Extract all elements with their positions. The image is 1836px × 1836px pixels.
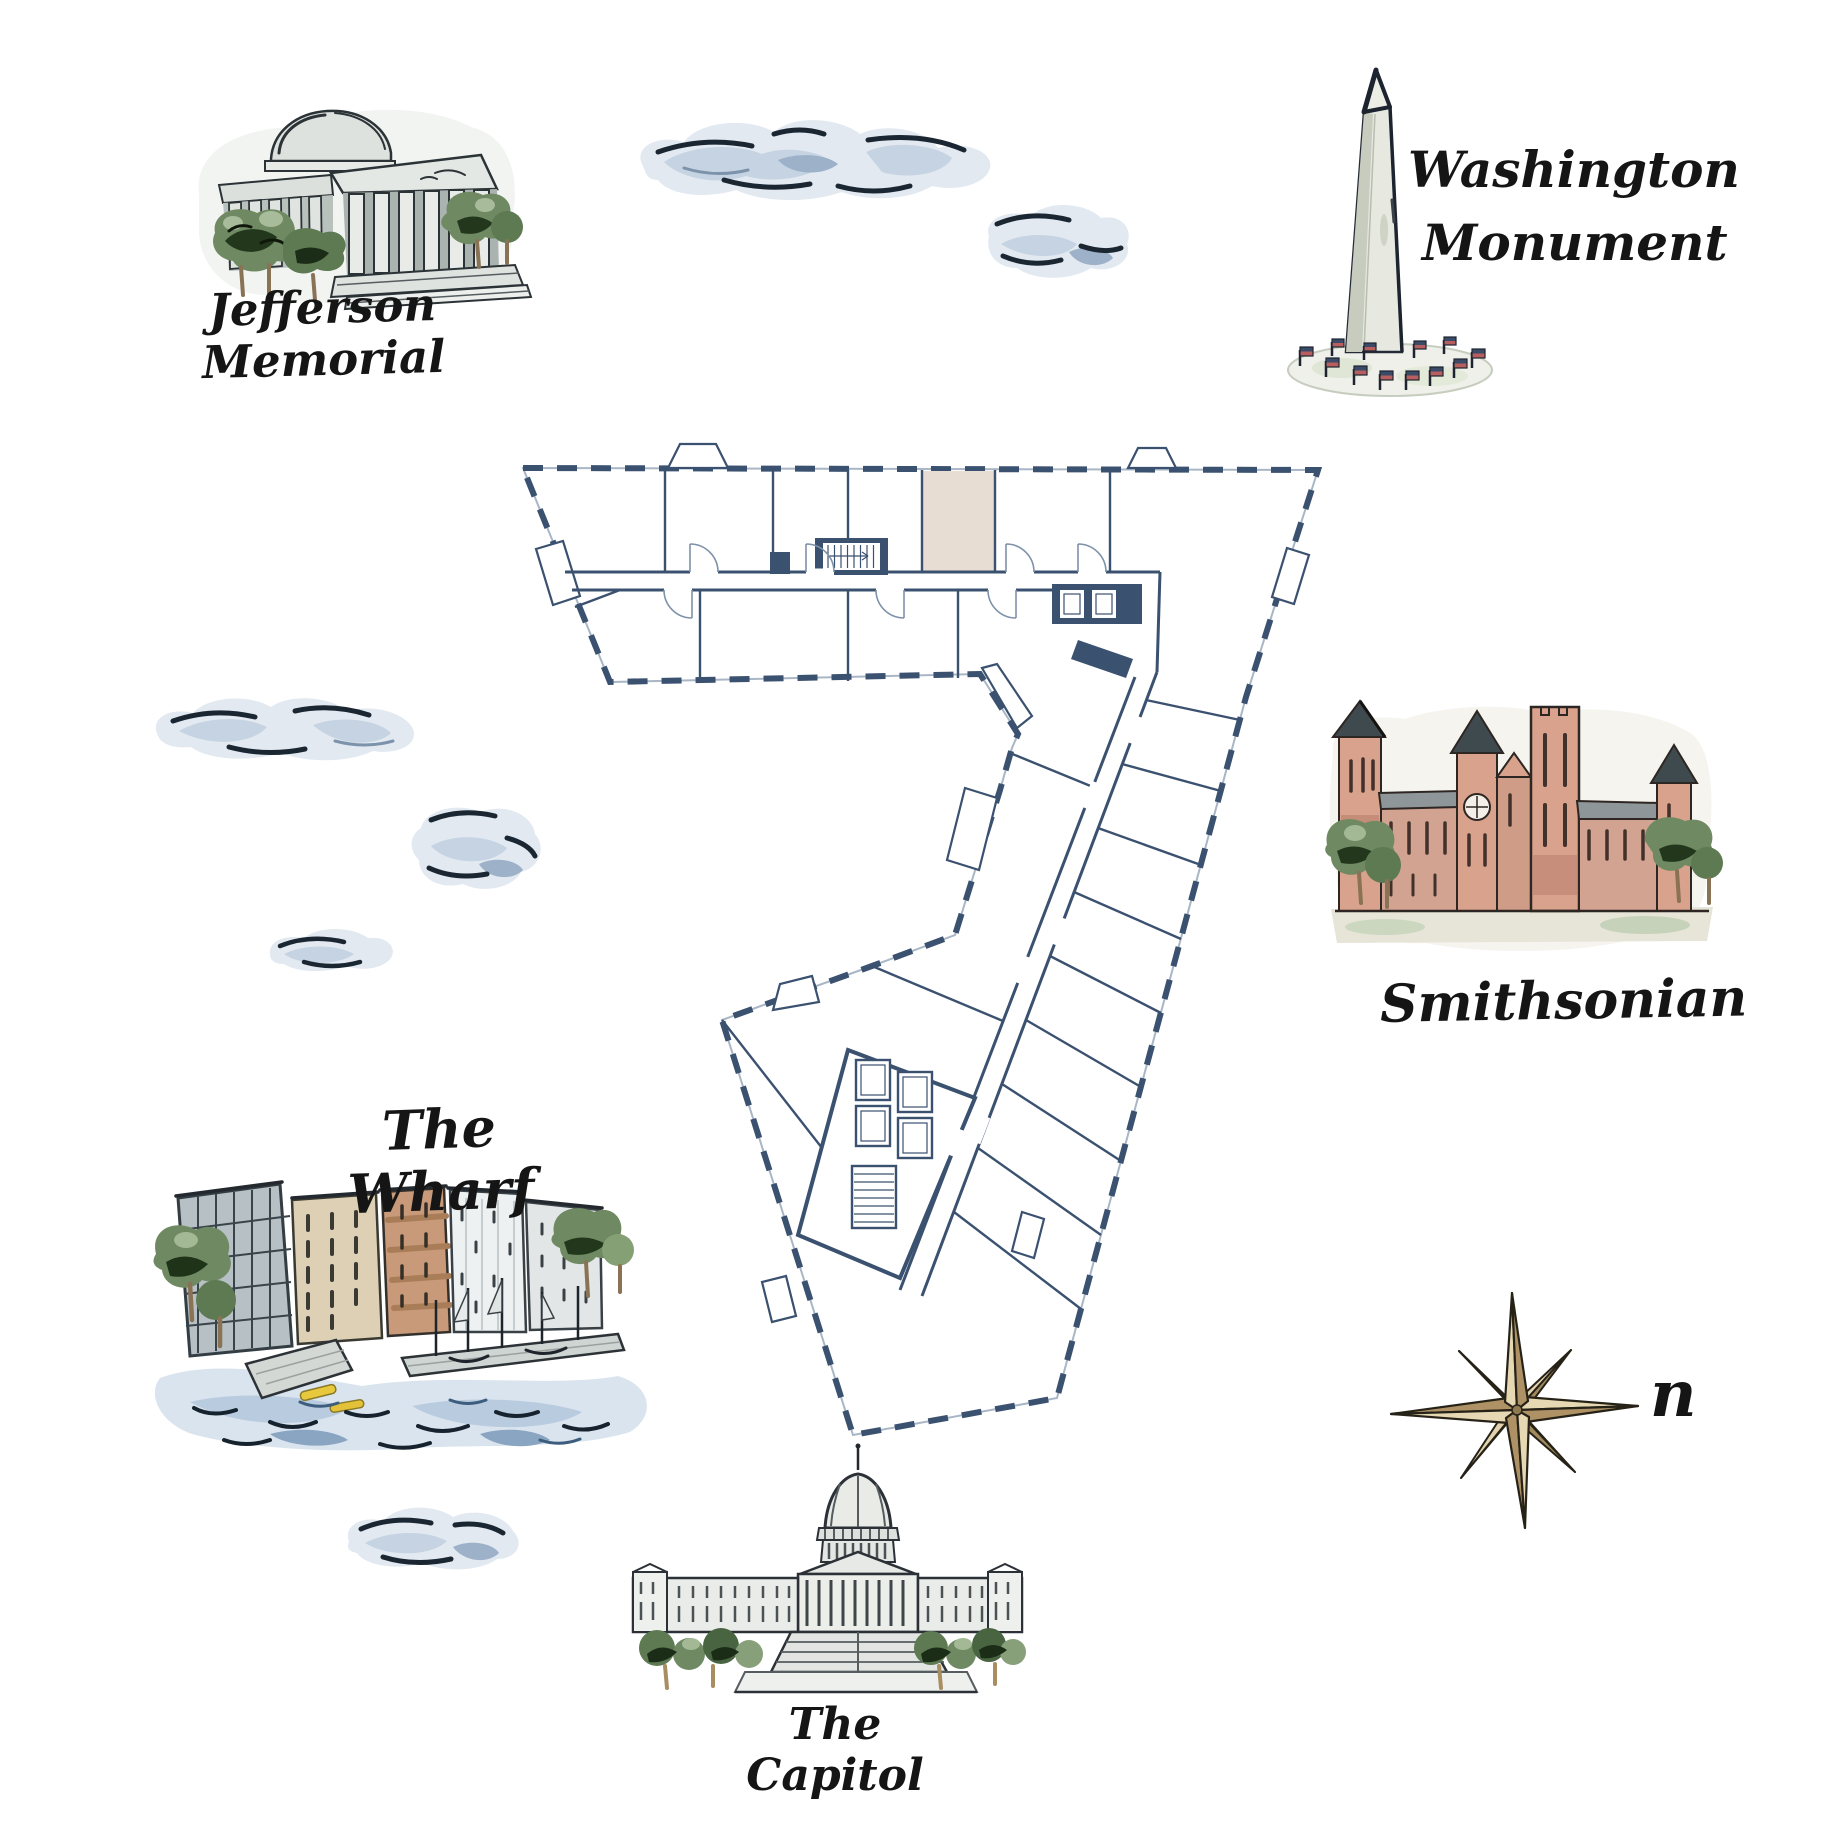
highlighted-room bbox=[922, 471, 995, 571]
smithsonian-label: Smithsonian bbox=[1380, 969, 1711, 1035]
compass-rose bbox=[1391, 1293, 1638, 1528]
cloud-left-1 bbox=[156, 698, 414, 760]
cloud-top-right bbox=[988, 205, 1129, 278]
cloud-bottom-left bbox=[348, 1508, 519, 1570]
cloud-top bbox=[640, 120, 990, 200]
floor-plan bbox=[523, 444, 1318, 1435]
illustrated-map-canvas: Jefferson Memorial Washington Monument S… bbox=[0, 0, 1836, 1836]
floor-plan-footprint bbox=[523, 468, 1318, 1435]
washington-monument-label-line2: Monument bbox=[1422, 213, 1728, 272]
jefferson-memorial-label: Jefferson Memorial bbox=[117, 277, 530, 391]
capitol-label: The Capitol bbox=[705, 1700, 965, 1801]
smithsonian-illustration bbox=[1325, 701, 1723, 951]
cloud-left-3 bbox=[270, 929, 393, 971]
capitol-illustration bbox=[633, 1444, 1026, 1693]
cloud-left-2 bbox=[412, 808, 541, 889]
compass-north-label: n bbox=[1650, 1358, 1697, 1432]
washington-monument-label-line1: Washington bbox=[1408, 140, 1740, 199]
washington-monument-label: Washington Monument bbox=[1408, 134, 1728, 279]
wharf-label: The Wharf bbox=[288, 1093, 592, 1228]
